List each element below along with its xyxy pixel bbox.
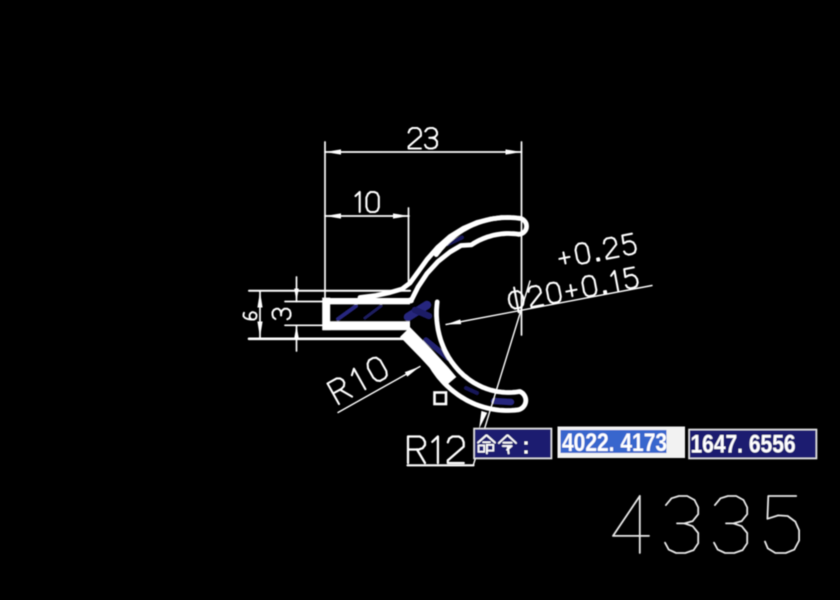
svg-text:1647. 6556: 1647. 6556 [691, 430, 796, 458]
svg-text:4022. 4173: 4022. 4173 [562, 428, 667, 456]
